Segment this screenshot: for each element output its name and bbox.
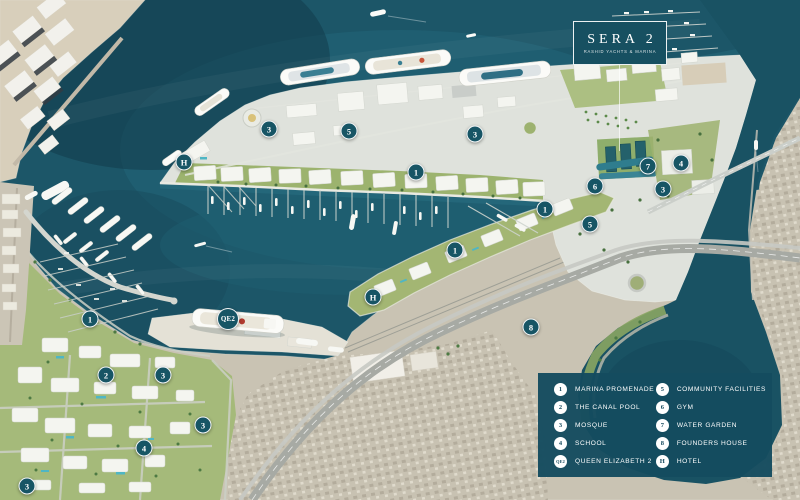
legend-column: 5COMMUNITY FACILITIES6GYM7WATER GARDEN8F… <box>656 382 766 468</box>
map-marker-2[interactable]: 2 <box>98 367 115 384</box>
legend-item-label: WATER GARDEN <box>677 422 737 429</box>
legend-item: QE2QUEEN ELIZABETH 2 <box>554 454 656 468</box>
map-marker-3[interactable]: 3 <box>261 121 278 138</box>
map-marker-h[interactable]: H <box>176 154 193 171</box>
map-marker-1[interactable]: 1 <box>447 242 464 259</box>
legend-item: 8FOUNDERS HOUSE <box>656 436 766 450</box>
map-marker-6[interactable]: 6 <box>587 178 604 195</box>
map-marker-5[interactable]: 5 <box>582 216 599 233</box>
legend-panel: 1MARINA PROMENADE2THE CANAL POOL3MOSQUE4… <box>538 373 772 477</box>
logo-subtitle: RASHID YACHTS & MARINA <box>584 49 657 54</box>
map-marker-3[interactable]: 3 <box>655 181 672 198</box>
legend-item: 4SCHOOL <box>554 436 656 450</box>
map-marker-4[interactable]: 4 <box>136 440 153 457</box>
legend-item-label: COMMUNITY FACILITIES <box>677 386 766 393</box>
map-marker-h[interactable]: H <box>365 289 382 306</box>
map-marker-1[interactable]: 1 <box>537 201 554 218</box>
map-marker-1[interactable]: 1 <box>82 311 99 328</box>
map-marker-qe2[interactable]: QE2 <box>217 308 239 330</box>
legend-item: 2THE CANAL POOL <box>554 400 656 414</box>
legend-item-number: 6 <box>656 401 669 414</box>
map-marker-3[interactable]: 3 <box>19 478 36 495</box>
legend-item-label: FOUNDERS HOUSE <box>677 440 748 447</box>
legend-item-label: HOTEL <box>677 458 702 465</box>
legend-item-label: THE CANAL POOL <box>575 404 640 411</box>
map-marker-3[interactable]: 3 <box>195 417 212 434</box>
legend-column: 1MARINA PROMENADE2THE CANAL POOL3MOSQUE4… <box>554 382 656 468</box>
legend-item: 3MOSQUE <box>554 418 656 432</box>
legend-item-label: SCHOOL <box>575 440 606 447</box>
legend-item-number: 2 <box>554 401 567 414</box>
legend-item: 6GYM <box>656 400 766 414</box>
map-marker-7[interactable]: 7 <box>640 158 657 175</box>
legend-item-label: QUEEN ELIZABETH 2 <box>575 458 652 465</box>
legend-item-number: 1 <box>554 383 567 396</box>
legend-item-label: MOSQUE <box>575 422 608 429</box>
logo-title: SERA 2 <box>583 32 657 47</box>
legend-item-number: 5 <box>656 383 669 396</box>
legend-item-number: 8 <box>656 437 669 450</box>
legend-item-number: H <box>656 455 669 468</box>
map-marker-4[interactable]: 4 <box>673 155 690 172</box>
legend-item: 7WATER GARDEN <box>656 418 766 432</box>
map-marker-3[interactable]: 3 <box>155 367 172 384</box>
map-marker-3[interactable]: 3 <box>467 126 484 143</box>
legend-item-number: 4 <box>554 437 567 450</box>
legend-item-label: MARINA PROMENADE <box>575 386 654 393</box>
map-marker-5[interactable]: 5 <box>341 123 358 140</box>
legend-item-number: QE2 <box>554 455 567 468</box>
legend-item-label: GYM <box>677 404 694 411</box>
map-marker-1[interactable]: 1 <box>408 164 425 181</box>
project-logo: SERA 2 RASHID YACHTS & MARINA <box>573 21 667 65</box>
legend-item: 5COMMUNITY FACILITIES <box>656 382 766 396</box>
legend-item-number: 3 <box>554 419 567 432</box>
masterplan-viewport: SERA 2 RASHID YACHTS & MARINA H351374631… <box>0 0 800 500</box>
logo-leader-line <box>619 63 620 151</box>
legend-item: 1MARINA PROMENADE <box>554 382 656 396</box>
map-marker-8[interactable]: 8 <box>523 319 540 336</box>
legend-item-number: 7 <box>656 419 669 432</box>
legend-item: HHOTEL <box>656 454 766 468</box>
